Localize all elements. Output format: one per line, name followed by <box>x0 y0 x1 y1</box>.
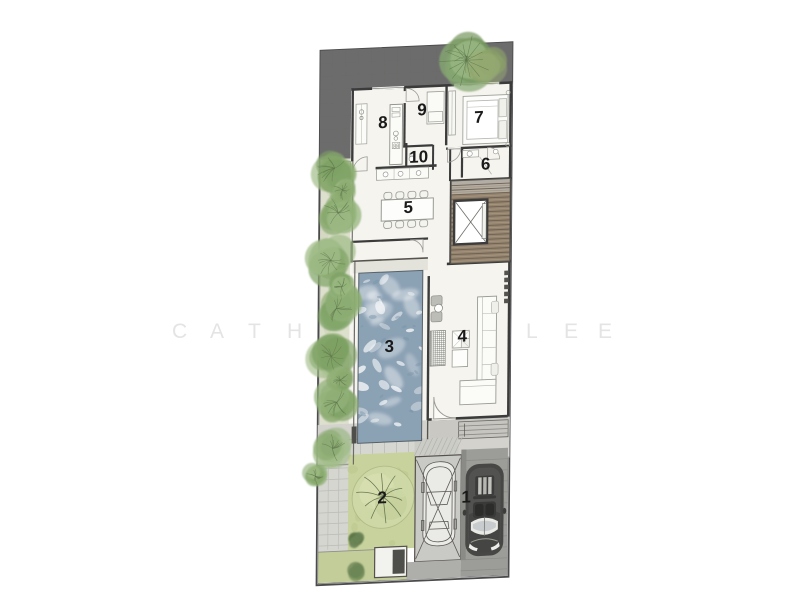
svg-text:4: 4 <box>458 326 468 345</box>
svg-text:A: A <box>210 320 224 343</box>
svg-text:6: 6 <box>481 154 491 173</box>
svg-text:8: 8 <box>378 113 388 132</box>
svg-text:3: 3 <box>384 337 394 356</box>
svg-text:T: T <box>248 320 261 343</box>
svg-text:C: C <box>172 320 187 343</box>
svg-text:7: 7 <box>474 108 484 127</box>
svg-text:E: E <box>564 320 578 343</box>
svg-text:10: 10 <box>409 147 428 167</box>
svg-text:2: 2 <box>377 488 387 507</box>
svg-text:9: 9 <box>417 100 427 119</box>
svg-text:E: E <box>598 320 612 343</box>
svg-text:H: H <box>287 320 302 343</box>
svg-text:L: L <box>526 320 538 343</box>
svg-text:5: 5 <box>403 198 413 217</box>
svg-text:1: 1 <box>461 487 471 506</box>
